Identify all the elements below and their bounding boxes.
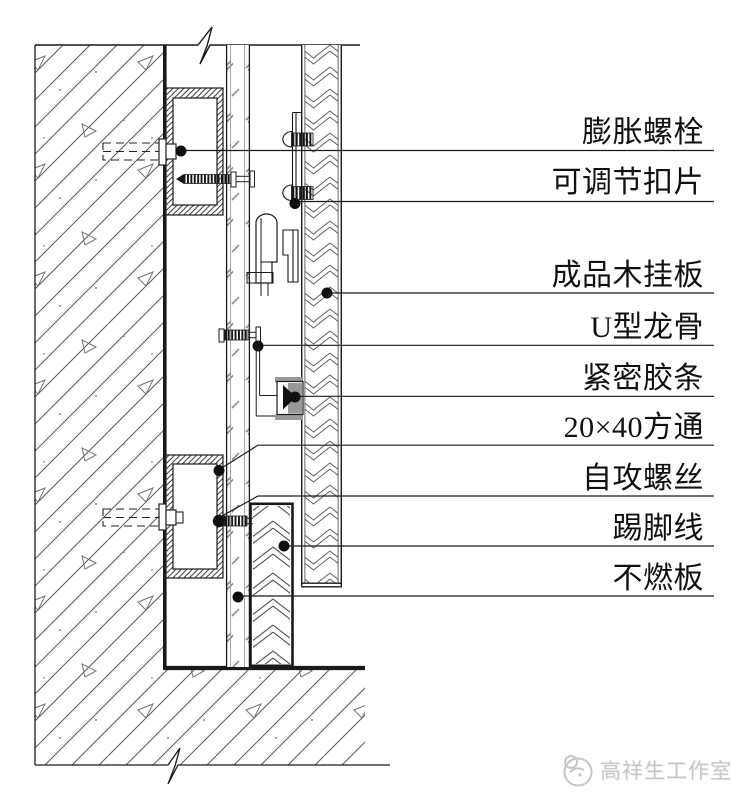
dot-rubber-seal	[290, 392, 301, 403]
keel-screw-nut	[219, 329, 224, 342]
dot-skirting	[279, 541, 290, 552]
studio-name: 高祥生工作室	[600, 755, 732, 785]
dot-adjustable-clip	[290, 198, 301, 209]
dot-square-tube	[214, 465, 225, 476]
clip-screw-bottom-thread	[292, 187, 314, 200]
dot-expansion-bolt	[176, 146, 187, 157]
dot-wood-panel	[322, 288, 333, 299]
label-fireproof-board: 不燃板	[613, 561, 705, 597]
dot-u-channel	[253, 341, 264, 352]
label-finished-wood-panel: 成品木挂板	[552, 258, 705, 294]
keel-flange	[256, 346, 277, 416]
fireproof-board-layer	[226, 45, 250, 667]
dot-fireproof-board	[233, 592, 244, 603]
label-adjustable-clip: 可调节扣片	[552, 165, 705, 201]
label-square-tube-20x40: 20×40方通	[564, 410, 704, 446]
construction-detail-page: 膨胀螺栓 可调节扣片 成品木挂板 U型龙骨 紧密胶条 20×40方通 自攻螺丝 …	[0, 0, 732, 806]
self-tapping-screw	[213, 515, 253, 527]
label-skirting-line: 踢脚线	[613, 511, 705, 547]
label-expansion-bolt: 膨胀螺栓	[582, 115, 704, 151]
clip-screw-top-head	[283, 132, 292, 148]
studio-watermark: 高祥生工作室	[560, 750, 732, 790]
label-u-channel-keel: U型龙骨	[590, 310, 704, 346]
clip-screw-top-thread	[292, 133, 314, 146]
clip-screw-bottom-head	[283, 185, 292, 201]
clip-step-bracket	[283, 230, 298, 282]
finished-wood-panel	[301, 45, 342, 587]
keel-screw-thread	[224, 330, 248, 340]
studio-logo-icon	[560, 750, 596, 790]
label-rubber-seal-strip: 紧密胶条	[582, 361, 704, 397]
label-self-tapping-screw: 自攻螺丝	[582, 461, 704, 497]
skirting-board	[251, 504, 293, 666]
